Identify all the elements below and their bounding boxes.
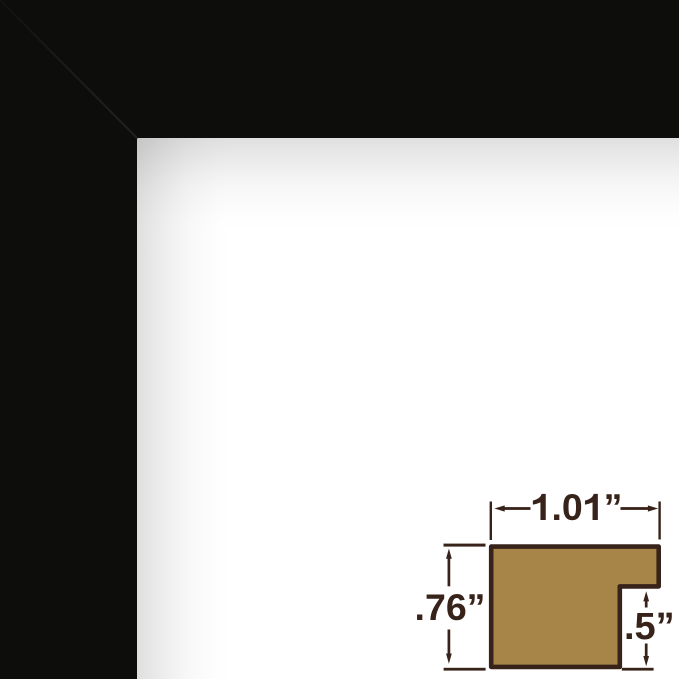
svg-text:.76”: .76” <box>415 586 486 628</box>
svg-text:.5”: .5” <box>624 606 675 648</box>
svg-text:.0: .0 <box>552 486 583 528</box>
svg-text:”: ” <box>604 486 623 528</box>
